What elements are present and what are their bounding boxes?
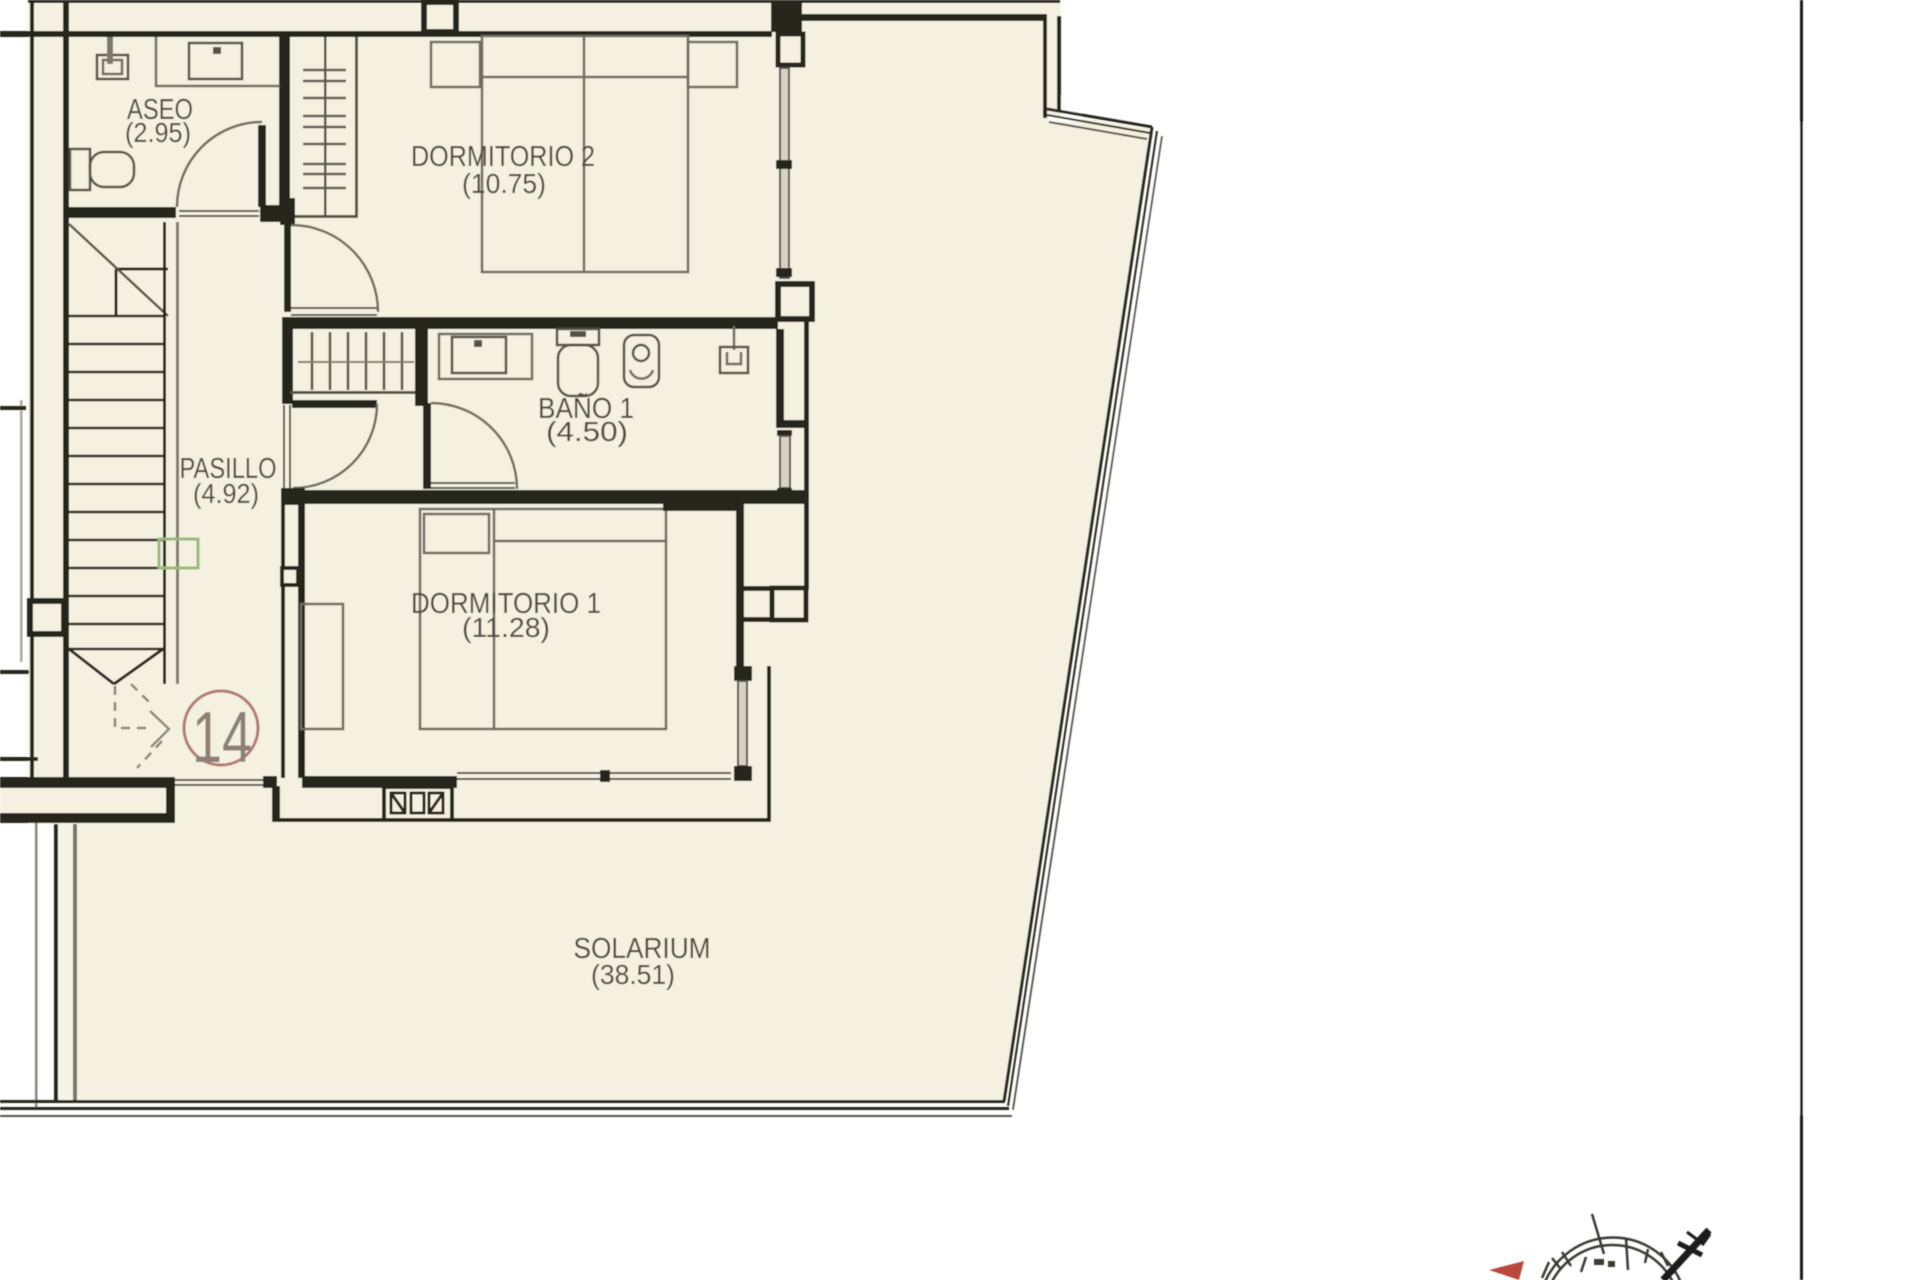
svg-text:(11.28): (11.28) xyxy=(462,612,550,643)
svg-text:(4.92): (4.92) xyxy=(193,478,259,509)
svg-text:14: 14 xyxy=(192,698,252,778)
svg-text:(10.75): (10.75) xyxy=(462,168,546,199)
svg-text:(2.95): (2.95) xyxy=(125,117,191,148)
svg-text:(4.50): (4.50) xyxy=(546,416,628,447)
svg-text:(38.51): (38.51) xyxy=(591,959,675,990)
